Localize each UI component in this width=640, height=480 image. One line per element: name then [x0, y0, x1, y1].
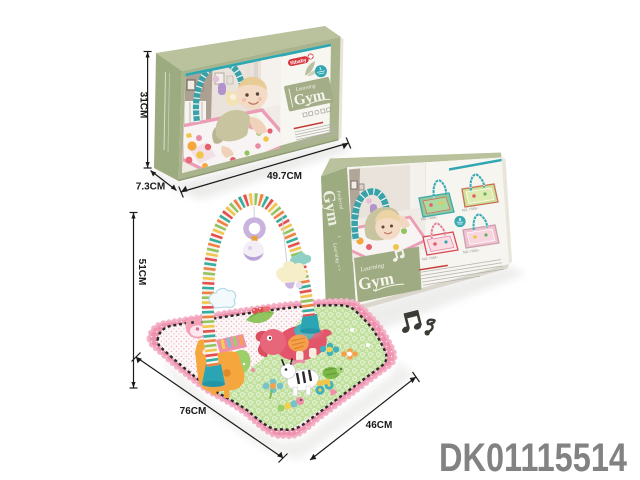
svg-text:46CM: 46CM [366, 420, 393, 431]
svg-text:49.7CM: 49.7CM [267, 171, 302, 182]
svg-text:5: 5 [459, 217, 462, 222]
svg-text:31CM: 31CM [138, 92, 149, 119]
svg-text:76CM: 76CM [180, 406, 207, 417]
svg-text:DK01115514: DK01115514 [439, 436, 628, 480]
svg-text:51CM: 51CM [136, 259, 147, 286]
svg-text:7.3CM: 7.3CM [136, 182, 165, 193]
